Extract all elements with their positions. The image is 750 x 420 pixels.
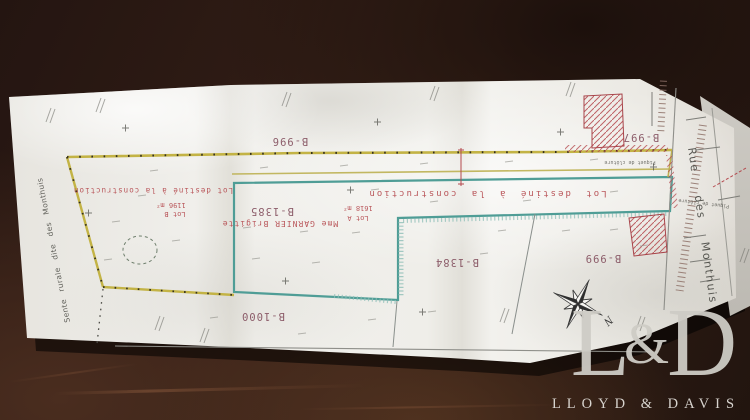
watermark-monogram: L&D <box>550 294 750 391</box>
monogram-letter-d: D <box>667 289 731 396</box>
watermark-agency-name: LLOYD & DAVIS <box>540 397 750 412</box>
monogram-letter-l: L <box>571 289 624 396</box>
photo-of-survey-plan: N B-996 B-997 B-999 B-1000 B-1384 B-1385… <box>0 0 750 420</box>
agency-watermark: L&D LLOYD & DAVIS <box>550 294 750 412</box>
table-scratch <box>55 384 365 395</box>
table-scratch <box>300 404 560 411</box>
table-scratch <box>8 363 137 383</box>
monogram-ampersand: & <box>624 311 667 376</box>
